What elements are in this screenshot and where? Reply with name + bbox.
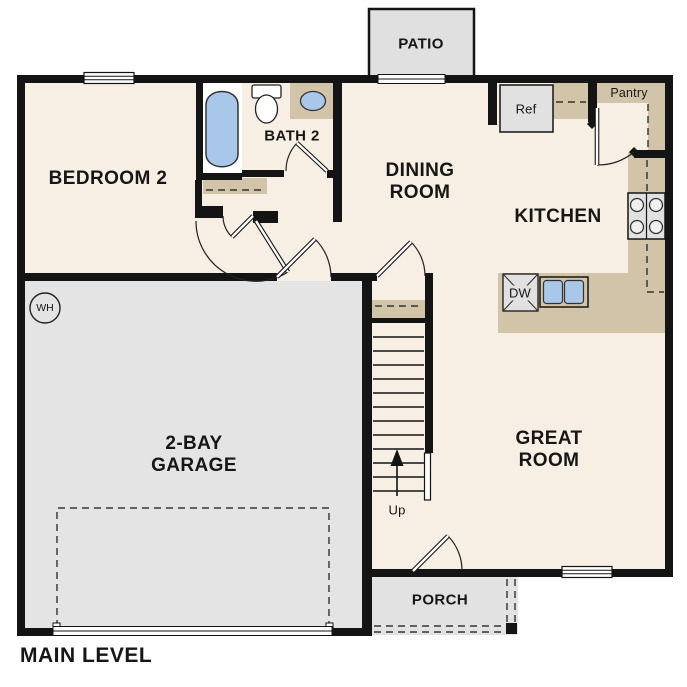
- stair-closet-shelf: [372, 300, 425, 318]
- bedroom-closet-shelf: [203, 178, 267, 194]
- room-label-porch: PORCH: [412, 591, 468, 608]
- stove-icon: [628, 193, 665, 239]
- fixture-label-refrigerator: Ref: [516, 101, 537, 116]
- bath-sink-icon: [301, 92, 326, 111]
- page-title: MAIN LEVEL: [20, 644, 152, 668]
- kitchen-cabinet: [553, 83, 592, 119]
- great-room-window: [562, 567, 612, 578]
- toilet-icon: [256, 95, 278, 123]
- stairs-up-label: Up: [388, 502, 405, 517]
- room-label-bath2: BATH 2: [264, 127, 319, 144]
- sliding-patio-door: [378, 75, 445, 84]
- room-label-garage: 2-BAY GARAGE: [151, 433, 237, 477]
- fixture-label-dishwasher: DW: [508, 285, 532, 300]
- floorplan-canvas: BEDROOM 2 BATH 2 DINING ROOM KITCHEN GRE…: [0, 0, 687, 687]
- bathtub-icon: [206, 92, 238, 167]
- kitchen-sink-icon: [540, 277, 588, 307]
- fixture-label-water-heater: WH: [36, 302, 54, 314]
- room-label-dining: DINING ROOM: [386, 160, 455, 204]
- room-label-kitchen: KITCHEN: [514, 206, 601, 228]
- porch-post: [506, 623, 517, 634]
- room-label-patio: PATIO: [398, 35, 444, 52]
- garage-door: [53, 627, 332, 636]
- room-label-great-room: GREAT ROOM: [515, 428, 582, 472]
- floorplan-drawing: [0, 0, 687, 687]
- room-label-bedroom2: BEDROOM 2: [49, 168, 168, 190]
- pantry-shelf-right: [648, 83, 665, 152]
- stair-railing: [425, 453, 431, 500]
- bedroom-window: [84, 73, 134, 84]
- room-label-pantry: Pantry: [610, 86, 647, 101]
